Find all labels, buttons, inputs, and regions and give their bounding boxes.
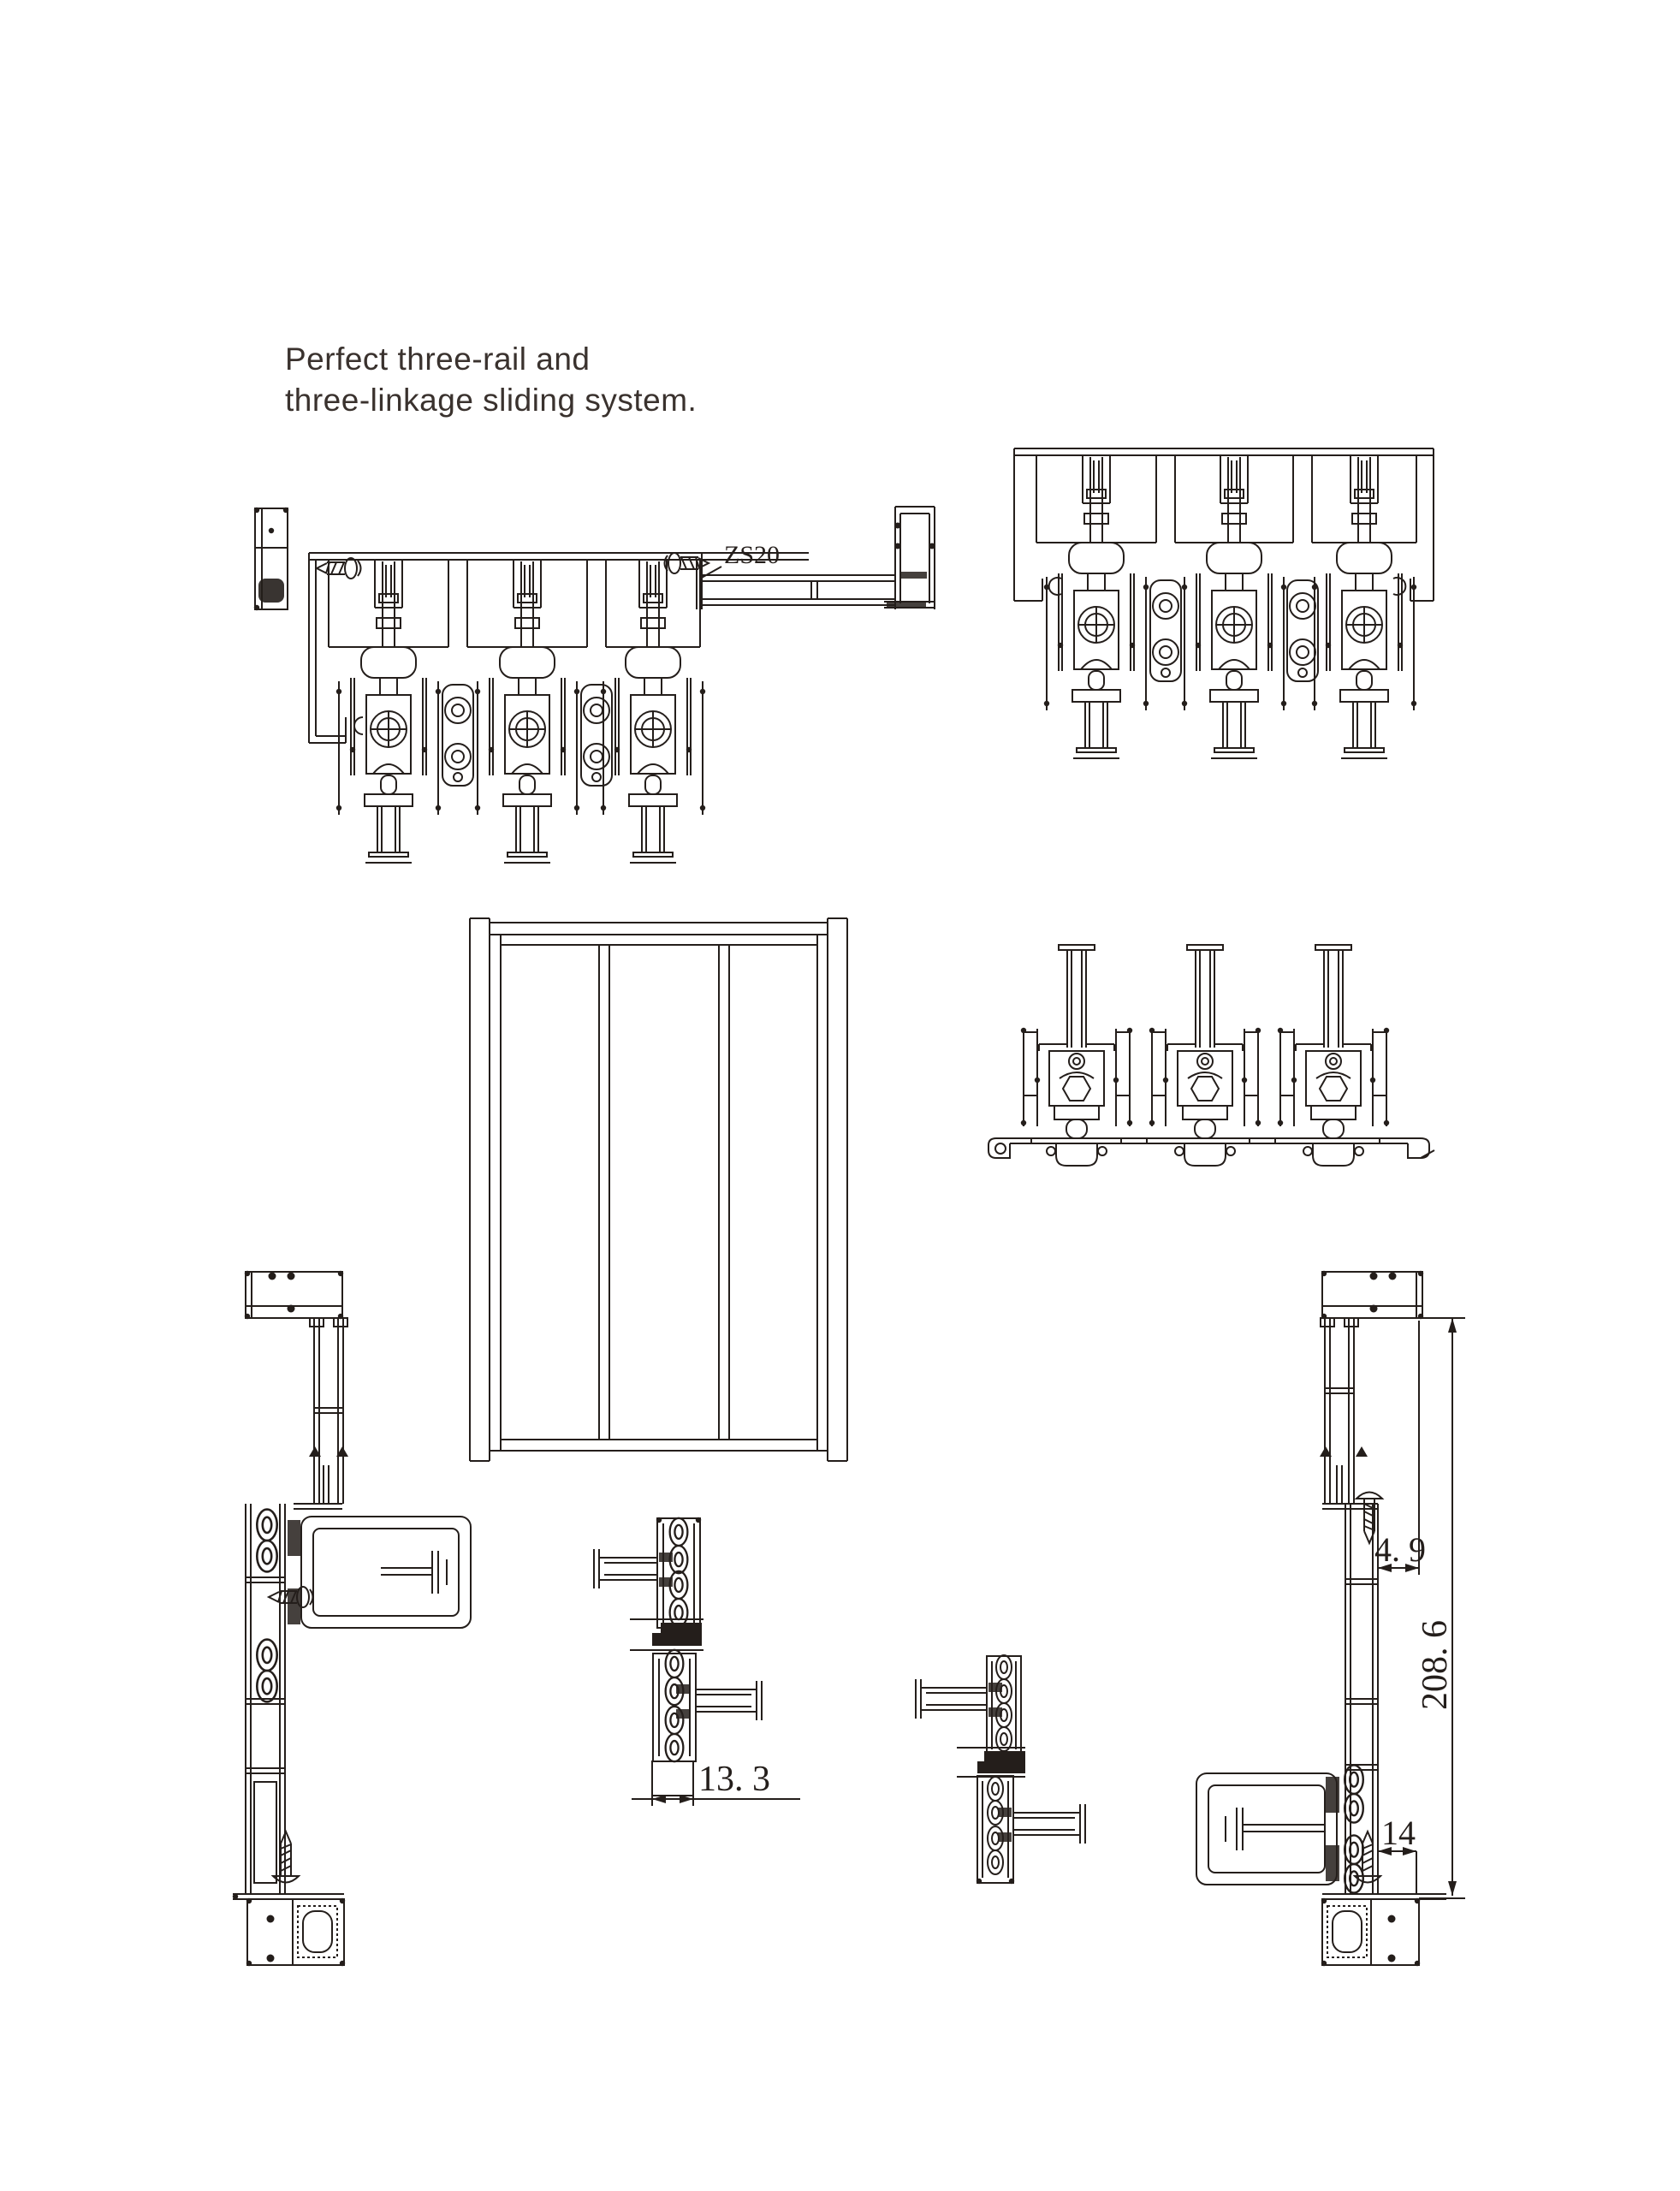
dim-4-9-label: 4. 9 <box>1374 1530 1426 1569</box>
screw-icon <box>317 558 361 579</box>
gasket-icon <box>1345 1765 1363 1822</box>
view-bottom-roller-section <box>988 945 1434 1166</box>
dim-208-6-label: 208. 6 <box>1416 1620 1455 1710</box>
technical-drawing-canvas: ZS20 <box>0 0 1680 2191</box>
dimension-4-9: 4. 9 <box>1374 1321 1426 1575</box>
seal-block <box>288 1520 300 1556</box>
glazing-arm-left <box>594 1549 673 1588</box>
roller-stack <box>442 685 473 786</box>
jamb-cap <box>294 1504 342 1509</box>
view-interlock-section-a: 13. 3 <box>594 1517 800 1806</box>
view-interlock-section-b <box>916 1655 1085 1884</box>
left-wall-bracket <box>254 508 288 610</box>
clamp-profile <box>301 1517 471 1628</box>
view-three-panel-elevation <box>470 918 847 1461</box>
view-top-rail-section <box>1014 448 1434 758</box>
drawing-page: Perfect three-rail and three-linkage sli… <box>0 0 1680 2191</box>
bottom-fixing-bracket <box>1321 1894 1446 1966</box>
view-left-jamb-section <box>233 1271 471 1966</box>
brush-seal <box>630 1619 703 1650</box>
bottom-track-profile <box>988 1138 1434 1166</box>
gasket-icon <box>666 1650 684 1705</box>
roller-stack <box>581 685 612 786</box>
brush-seal <box>957 1748 1025 1777</box>
roller-assembly <box>1182 457 1286 758</box>
bottom-carriage <box>1021 945 1132 1138</box>
gasket-icon <box>257 1640 276 1702</box>
bottom-fixing-bracket <box>233 1894 345 1966</box>
gasket-icon <box>257 1510 276 1572</box>
roller-assembly <box>1312 457 1416 758</box>
top-fixing-bracket <box>245 1271 343 1319</box>
part-label-leader <box>700 567 721 579</box>
right-jamb-bracket <box>884 507 935 609</box>
dimension-14: 14 <box>1378 1814 1416 1894</box>
top-fixing-bracket <box>1321 1271 1423 1319</box>
dim-13-3-label: 13. 3 <box>698 1760 770 1799</box>
dim-14-label: 14 <box>1381 1814 1416 1852</box>
bottom-carriage <box>1278 945 1389 1138</box>
glazing-arm-right <box>998 1804 1085 1844</box>
roller-stack <box>1150 580 1181 681</box>
dimension-13-3: 13. 3 <box>632 1760 800 1806</box>
roller-assembly <box>601 561 705 863</box>
dimension-208-6: 208. 6 <box>1416 1318 1465 1898</box>
gasket-icon <box>996 1655 1012 1703</box>
gasket-icon <box>670 1518 688 1573</box>
seal-block <box>1326 1777 1339 1813</box>
gasket-icon <box>1345 1835 1363 1892</box>
jamb-post <box>1320 1318 1368 1504</box>
roller-assembly <box>336 561 441 863</box>
view-right-jamb-section: 4. 9 208. 6 14 <box>1196 1271 1465 1966</box>
screw-icon <box>1355 1832 1380 1883</box>
clamp-profile <box>1196 1773 1337 1885</box>
seal-block <box>1326 1845 1339 1881</box>
roller-assembly <box>475 561 579 863</box>
upper-stile <box>987 1656 1021 1753</box>
part-label-zs20: ZS20 <box>724 541 780 569</box>
jamb-connector-arm <box>702 575 895 605</box>
roller-assembly <box>1044 457 1149 758</box>
glazing-arm-left <box>916 1679 1002 1719</box>
bottom-carriage <box>1149 945 1261 1138</box>
measured-rail-foot <box>652 1761 693 1796</box>
view-top-rail-section-with-jambs: ZS20 <box>254 507 935 863</box>
gasket-icon <box>988 1777 1003 1825</box>
jamb-post <box>309 1318 348 1504</box>
roller-stack <box>1287 580 1318 681</box>
